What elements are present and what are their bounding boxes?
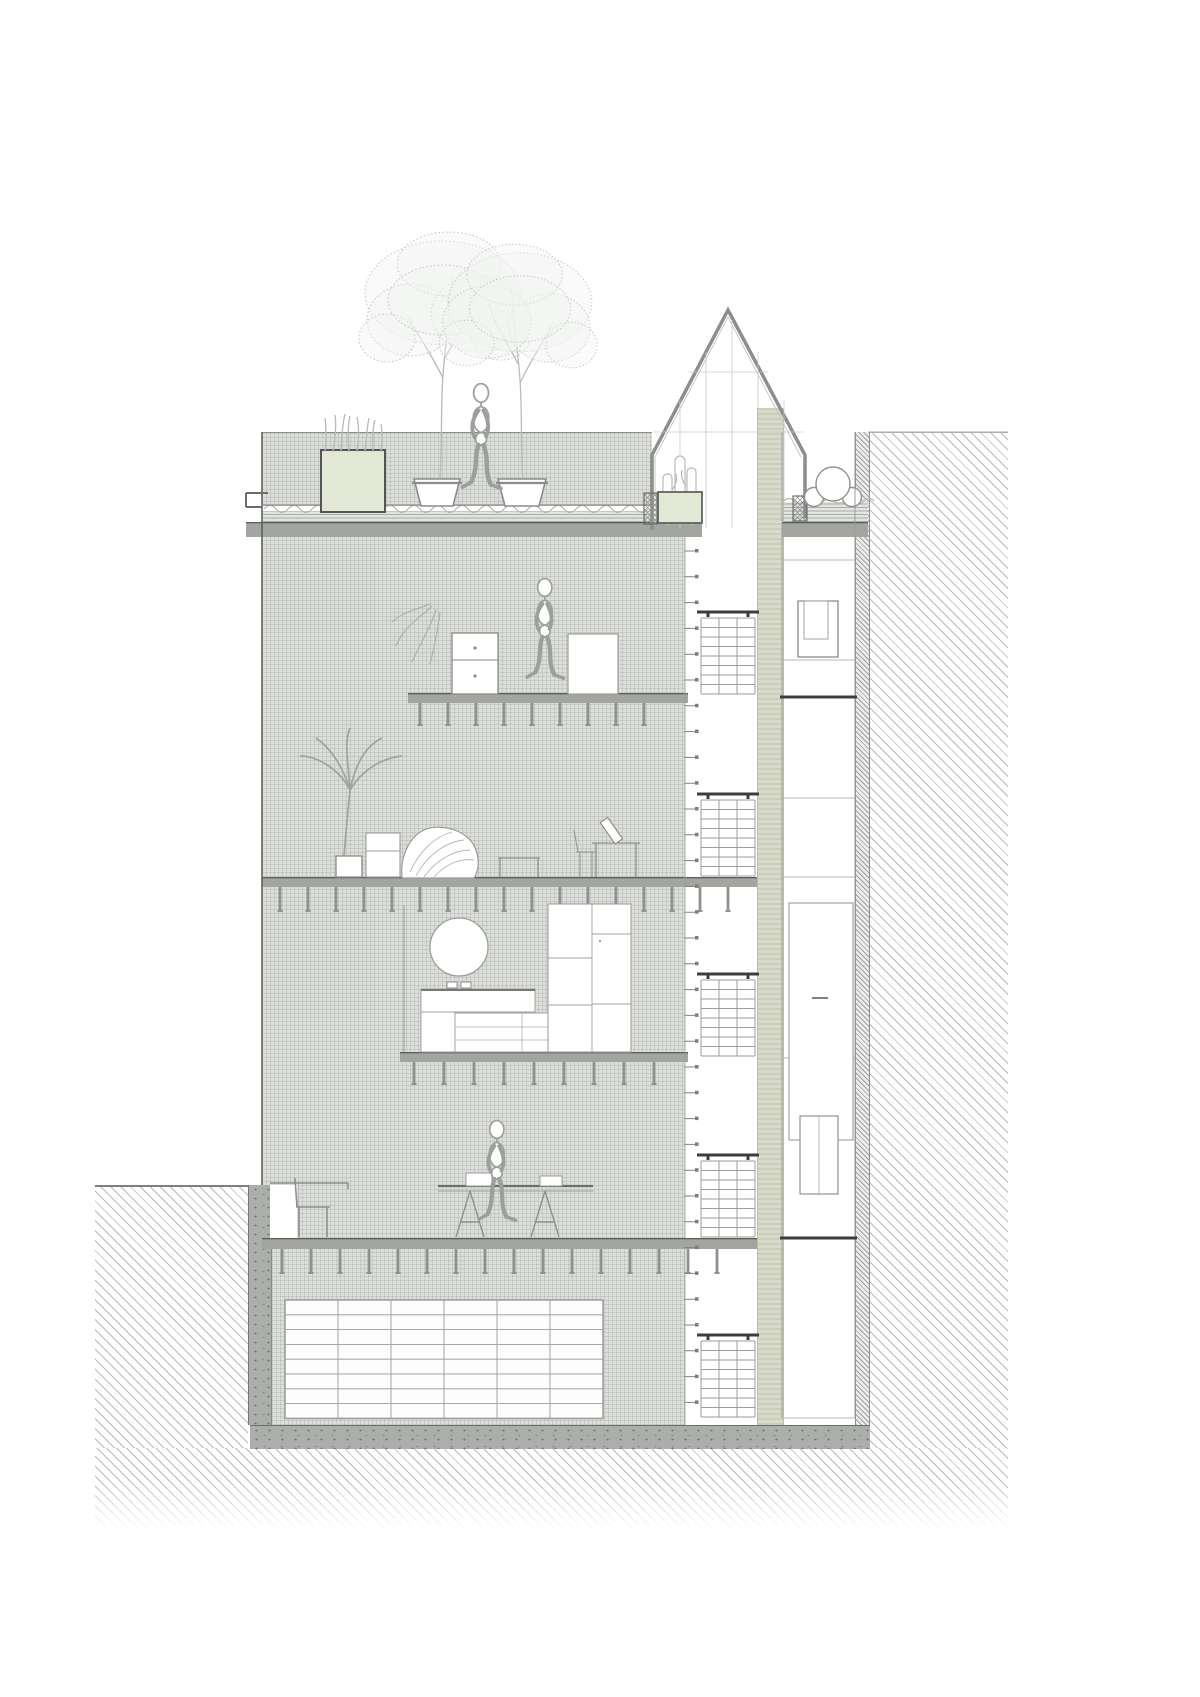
architectural-section-canvas [0, 0, 1200, 1697]
living-furniture [300, 728, 640, 878]
tall-cabinets [548, 904, 631, 1052]
side-room-column [780, 432, 857, 1418]
round-mirror [430, 918, 488, 976]
section-linework [0, 0, 1200, 1697]
mannequin-bedroom [527, 579, 564, 679]
grass-planter-box [321, 414, 385, 512]
tree-pots [412, 479, 548, 506]
mannequin-figures [462, 384, 563, 1221]
mannequin-ground [479, 1121, 516, 1221]
entrance-door-left [270, 1183, 348, 1238]
earth-fade [95, 1480, 1008, 1540]
door-middle [789, 903, 853, 1140]
roof-tree [439, 244, 597, 478]
bedroom-furniture [392, 604, 618, 694]
kitchen-furniture [404, 904, 631, 1052]
greenhouse-planter-box [658, 492, 702, 523]
mannequin-roof [462, 384, 500, 489]
round-pipes-on-roof [805, 467, 862, 507]
roof-curb-left [644, 493, 657, 524]
